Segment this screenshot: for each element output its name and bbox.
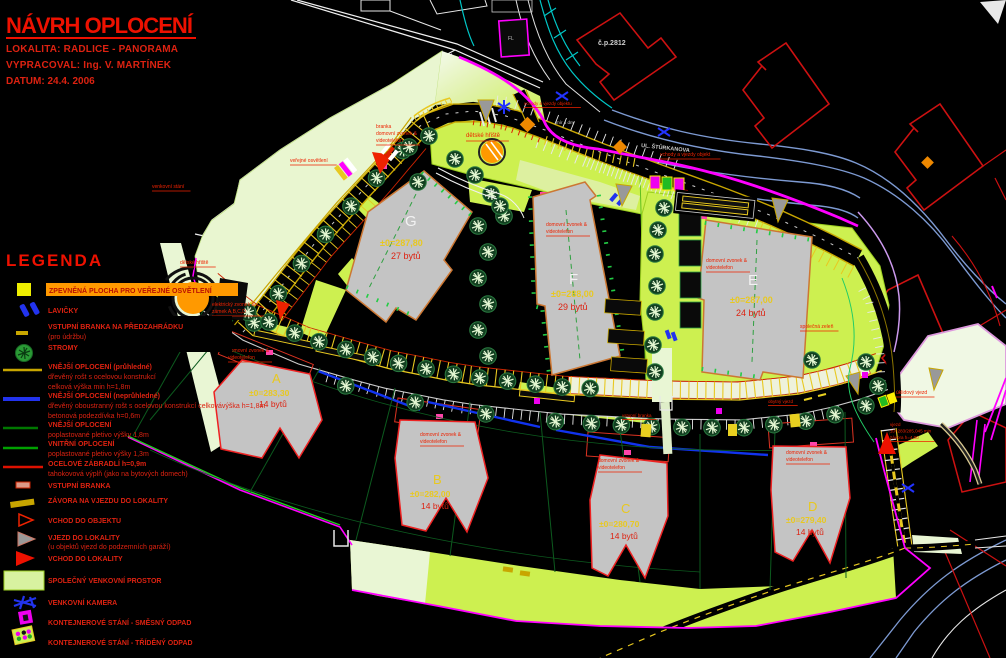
svg-text:videotelefon: videotelefon <box>786 457 813 463</box>
svg-text:VENKOVNÍ KAMERA: VENKOVNÍ KAMERA <box>48 598 117 607</box>
svg-text:NÁVRH OPLOCENÍ: NÁVRH OPLOCENÍ <box>6 13 194 38</box>
svg-text:venkovní stání: venkovní stání <box>152 184 185 190</box>
svg-text:vstupní branka: vstupní branka <box>622 413 652 418</box>
svg-text:14 bytů: 14 bytů <box>421 501 449 511</box>
svg-text:14 bytů: 14 bytů <box>610 531 638 541</box>
svg-text:zámek A,B,C,D: zámek A,B,C,D <box>212 309 246 315</box>
svg-text:domovní zvonek &: domovní zvonek & <box>706 258 748 264</box>
svg-text:(pro údržbu): (pro údržbu) <box>48 334 86 341</box>
svg-text:poplastované pletivo výšky 1,8: poplastované pletivo výšky 1,8m <box>48 432 149 439</box>
svg-text:FL: FL <box>508 36 514 42</box>
svg-text:obytný vjezd: obytný vjezd <box>768 399 794 404</box>
svg-text:vjezd: vjezd <box>890 422 901 427</box>
svg-text:G: G <box>405 213 417 230</box>
svg-text:VNITŘNÍ OPLOCENÍ: VNITŘNÍ OPLOCENÍ <box>48 439 116 448</box>
svg-text:č.p.2812: č.p.2812 <box>598 40 626 47</box>
svg-text:F: F <box>569 271 578 288</box>
svg-text:LEGENDA: LEGENDA <box>6 251 103 270</box>
svg-text:dřevěný oboustranný rošt s oce: dřevěný oboustranný rošt s ocelovou kons… <box>48 403 265 410</box>
svg-text:E: E <box>748 272 758 289</box>
svg-text:videotelefon: videotelefon <box>546 229 573 235</box>
svg-text:dětské hřiště: dětské hřiště <box>466 133 501 139</box>
svg-text:VSTUPNÍ BRANKA NA PŘEDZAHRÁDKU: VSTUPNÍ BRANKA NA PŘEDZAHRÁDKU <box>48 322 183 331</box>
svg-text:závora h=4,00: závora h=4,00 <box>890 435 919 440</box>
svg-text:LAVIČKY: LAVIČKY <box>48 306 79 315</box>
svg-text:úklidový vjezd: úklidový vjezd <box>896 390 927 396</box>
svg-text:videotelefon: videotelefon <box>376 138 403 144</box>
svg-text:domovní zvonek &: domovní zvonek & <box>546 222 588 228</box>
svg-text:videotelefon: videotelefon <box>228 355 255 361</box>
svg-text:24 bytů: 24 bytů <box>736 308 766 318</box>
svg-text:KONTEJNEROVÉ STÁNÍ - SMĚSNÝ OD: KONTEJNEROVÉ STÁNÍ - SMĚSNÝ ODPAD <box>48 618 191 627</box>
svg-text:KONTEJNEROVÉ STÁNÍ - TŘÍDĚNÝ O: KONTEJNEROVÉ STÁNÍ - TŘÍDĚNÝ ODPAD <box>48 638 193 647</box>
svg-text:14 bytů: 14 bytů <box>796 527 824 537</box>
svg-text:ZÁVORA NA VJEZDU DO LOKALITY: ZÁVORA NA VJEZDU DO LOKALITY <box>48 496 168 505</box>
svg-text:branka: branka <box>376 124 392 130</box>
svg-text:±0=283/285,045 min: ±0=283/285,045 min <box>890 429 932 434</box>
svg-text:vchody a vjezdy objektu: vchody a vjezdy objektu <box>524 101 572 106</box>
svg-text:VNĚJŠÍ OPLOCENÍ (neprůhledné): VNĚJŠÍ OPLOCENÍ (neprůhledné) <box>48 391 160 400</box>
svg-text:SPOLEČNÝ VENKOVNÍ PROSTOR: SPOLEČNÝ VENKOVNÍ PROSTOR <box>48 576 161 585</box>
svg-text:veřejné osvětlení: veřejné osvětlení <box>290 158 328 164</box>
svg-text:společná zeleň: společná zeleň <box>800 324 834 330</box>
svg-text:VJEZD DO LOKALITY: VJEZD DO LOKALITY <box>48 535 120 542</box>
svg-text:domovní zvonek &: domovní zvonek & <box>786 450 828 456</box>
svg-text:domovní zvonek &: domovní zvonek & <box>598 458 640 464</box>
svg-text:±0=287,00: ±0=287,00 <box>730 295 773 305</box>
svg-text:29 bytů: 29 bytů <box>558 302 588 312</box>
svg-text:STROMY: STROMY <box>48 345 78 352</box>
svg-text:27 bytů: 27 bytů <box>391 251 421 261</box>
svg-text:videotelefon: videotelefon <box>420 439 447 445</box>
svg-text:VSTUPNÍ BRANKA: VSTUPNÍ BRANKA <box>48 481 111 490</box>
svg-text:±0=283,30: ±0=283,30 <box>249 388 290 398</box>
svg-text:ZPEVNĚNÁ PLOCHA PRO VEŘEJNÉ OS: ZPEVNĚNÁ PLOCHA PRO VEŘEJNÉ OSVĚTLENÍ <box>49 286 213 295</box>
svg-text:betonová podezdívka h=0,6m: betonová podezdívka h=0,6m <box>48 413 140 420</box>
svg-text:domovní zvonek &: domovní zvonek & <box>420 432 462 438</box>
svg-text:elektrický zvonek &: elektrický zvonek & <box>212 302 255 308</box>
svg-text:D: D <box>808 499 817 514</box>
svg-text:DATUM: 24.4. 2006: DATUM: 24.4. 2006 <box>6 76 95 87</box>
svg-text:dřevěný rošt s ocelovou konstr: dřevěný rošt s ocelovou konstrukcí <box>48 374 156 381</box>
svg-text:videotelefon: videotelefon <box>706 265 733 271</box>
svg-text:mír 4 dny: mír 4 dny <box>556 120 576 125</box>
svg-text:±0=288,00: ±0=288,00 <box>551 289 594 299</box>
svg-text:domovní zvonek &: domovní zvonek & <box>376 131 418 137</box>
svg-text:(u objektů vjezd do podzemních: (u objektů vjezd do podzemních garáží) <box>48 543 171 551</box>
svg-text:videotelefon: videotelefon <box>598 465 625 471</box>
svg-text:VNĚJŠÍ OPLOCENÍ (průhledné): VNĚJŠÍ OPLOCENÍ (průhledné) <box>48 362 152 371</box>
svg-text:C: C <box>621 501 630 516</box>
svg-text:domovní zvonek &: domovní zvonek & <box>228 348 270 354</box>
svg-text:±0=282,00: ±0=282,00 <box>410 489 451 499</box>
svg-text:LOKALITA: RADLICE - PANORAMA: LOKALITA: RADLICE - PANORAMA <box>6 44 178 55</box>
svg-text:dětské hřiště: dětské hřiště <box>180 260 209 266</box>
svg-text:celková výška min h=1,8m: celková výška min h=1,8m <box>48 384 130 391</box>
svg-text:poplastované pletivo výšky 1,3: poplastované pletivo výšky 1,3m <box>48 451 149 458</box>
svg-text:VNĚJŠÍ OPLOCENÍ: VNĚJŠÍ OPLOCENÍ <box>48 420 112 429</box>
svg-text:±0=279,40: ±0=279,40 <box>786 515 827 525</box>
svg-text:±0=280,70: ±0=280,70 <box>599 519 640 529</box>
svg-text:OCELOVÉ ZÁBRADLÍ h=0,9m: OCELOVÉ ZÁBRADLÍ h=0,9m <box>48 459 146 468</box>
svg-text:VCHOD DO LOKALITY: VCHOD DO LOKALITY <box>48 556 123 563</box>
svg-text:VCHOD DO OBJEKTU: VCHOD DO OBJEKTU <box>48 518 121 525</box>
svg-text:VYPRACOVAL: Ing. V. MARTÍNEK: VYPRACOVAL: Ing. V. MARTÍNEK <box>6 58 172 71</box>
svg-text:A: A <box>272 371 281 386</box>
svg-text:B: B <box>433 472 442 487</box>
svg-text:tahokovová výplň (jako na byto: tahokovová výplň (jako na bytových domec… <box>48 471 188 478</box>
svg-text:±0=287,80: ±0=287,80 <box>380 238 423 248</box>
